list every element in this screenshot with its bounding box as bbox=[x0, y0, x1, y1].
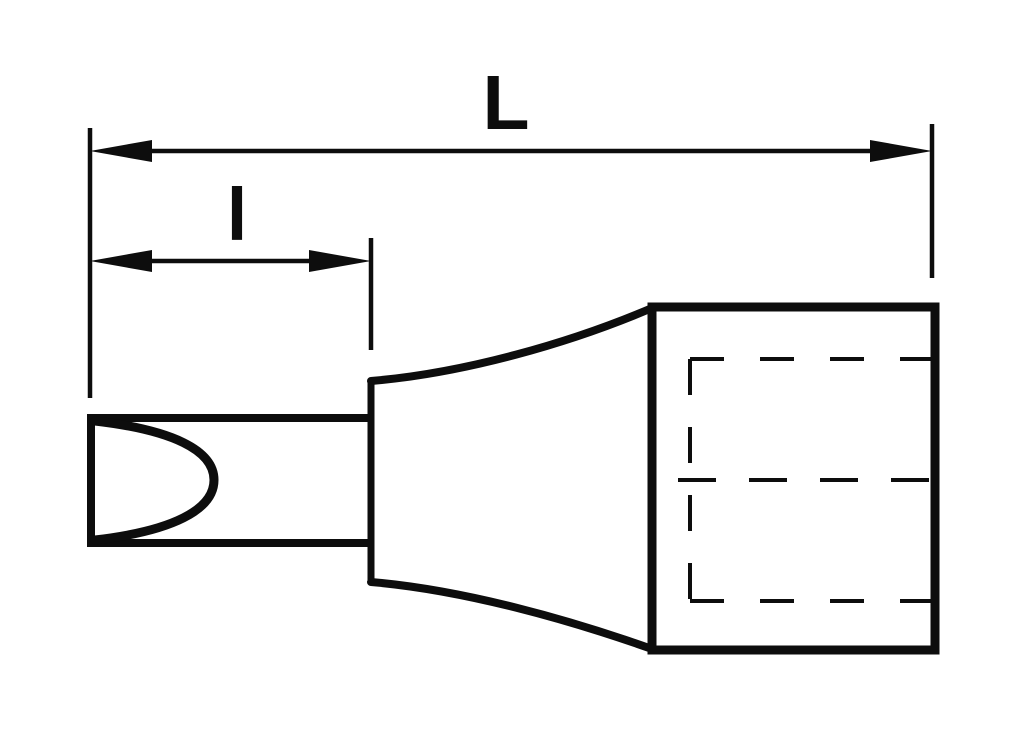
bit-shank-outline bbox=[91, 418, 371, 543]
slot-tip-curve bbox=[95, 421, 214, 540]
dimension-label-bit-length: l bbox=[227, 173, 248, 256]
dimension-bit-length: l bbox=[90, 173, 371, 272]
taper-top-flare bbox=[371, 308, 652, 381]
taper-bottom-flare bbox=[371, 582, 652, 649]
dimension-label-overall-length: L bbox=[482, 60, 529, 146]
arrowhead-L-left bbox=[90, 140, 152, 162]
drawing-page: L l bbox=[0, 0, 1024, 737]
drive-hole-hidden-lines bbox=[678, 359, 931, 601]
arrowhead-l-right bbox=[309, 250, 371, 272]
socket-bit-outline bbox=[91, 307, 935, 650]
arrowhead-l-left bbox=[90, 250, 152, 272]
dimension-overall-length: L bbox=[90, 60, 932, 162]
arrowhead-L-right bbox=[870, 140, 932, 162]
technical-drawing: L l bbox=[0, 0, 1024, 737]
